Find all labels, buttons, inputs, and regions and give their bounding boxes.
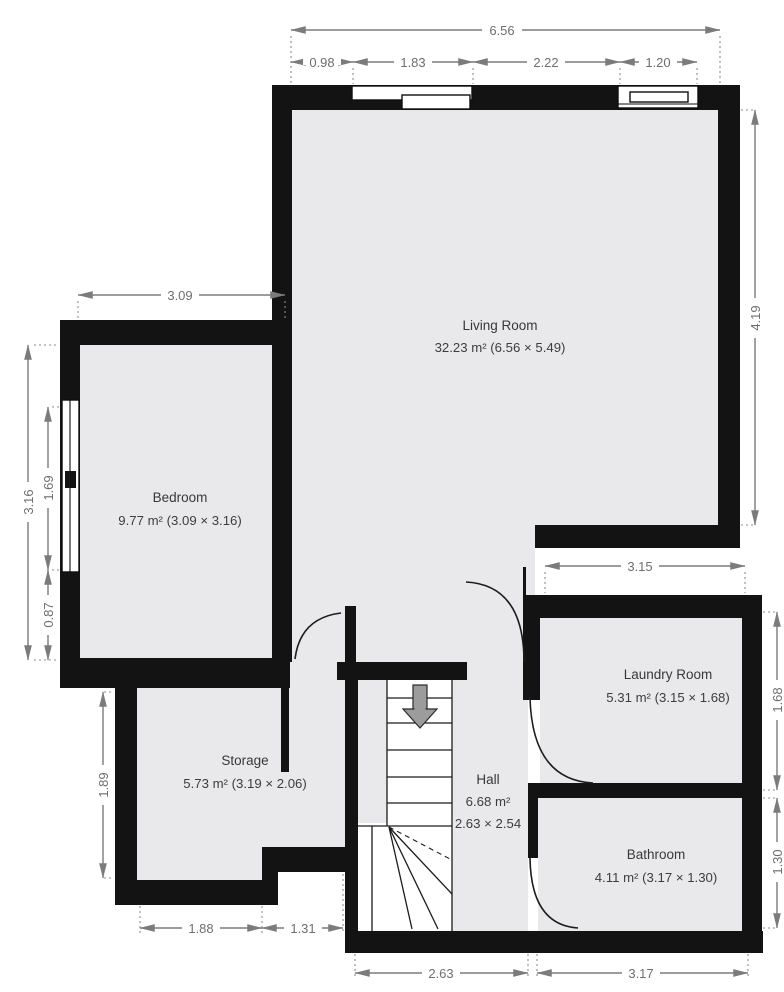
door-leaf <box>281 688 289 772</box>
wall <box>345 662 358 953</box>
wall <box>528 783 742 798</box>
storage-name: Storage <box>221 753 268 768</box>
dim-right-bathroom: 1.30 <box>770 849 784 874</box>
dim-left-below-window: 0.87 <box>41 602 56 627</box>
dim-top-a: 0.98 <box>309 55 334 70</box>
dim-bottom-hall: 2.63 <box>428 966 453 981</box>
hall-area: 6.68 m² <box>466 794 511 809</box>
bathroom-name: Bathroom <box>627 847 686 862</box>
dim-left-total: 3.16 <box>21 489 36 514</box>
dim-storage-height: 1.89 <box>96 772 111 797</box>
wall <box>345 931 763 953</box>
laundry-room-name: Laundry Room <box>624 667 713 682</box>
wall <box>115 880 278 905</box>
dim-bottom-notch: 1.31 <box>290 921 315 936</box>
floor-plan-canvas: 6.56 0.98 1.83 2.22 1.20 3.09 3.16 <box>0 0 784 992</box>
wall <box>718 85 740 548</box>
wall <box>60 658 290 688</box>
hall-dims: 2.63 × 2.54 <box>455 816 521 831</box>
living-room-area: 32.23 m² (6.56 × 5.49) <box>435 340 566 355</box>
wall <box>742 595 762 953</box>
living-room-floor-lower <box>292 110 535 662</box>
storage-area: 5.73 m² (3.19 × 2.06) <box>183 776 307 791</box>
storage-doorway-floor <box>290 658 345 688</box>
door-leaf <box>523 567 526 597</box>
bathroom-area: 4.11 m² (3.17 × 1.30) <box>595 870 718 885</box>
dim-left-window: 1.69 <box>41 475 56 500</box>
dim-bottom-storage: 1.88 <box>188 921 213 936</box>
bedroom-area: 9.77 m² (3.09 × 3.16) <box>118 513 242 528</box>
dim-top-d: 1.20 <box>645 55 670 70</box>
dim-bedroom-width: 3.09 <box>167 288 192 303</box>
wall <box>535 525 740 548</box>
wall <box>528 798 538 858</box>
dim-top-total: 6.56 <box>489 23 514 38</box>
dim-right-laundry: 1.68 <box>770 687 784 712</box>
bathroom-floor <box>538 798 742 931</box>
wall <box>523 595 540 700</box>
wall <box>115 658 137 905</box>
living-room-name: Living Room <box>462 318 537 333</box>
window-top-right <box>618 86 698 108</box>
wall <box>262 847 278 905</box>
wall <box>272 85 292 662</box>
hall-name: Hall <box>476 772 499 787</box>
dim-right-living: 4.19 <box>748 305 763 330</box>
door-leaf <box>345 606 356 662</box>
dim-top-c: 2.22 <box>533 55 558 70</box>
laundry-room-area: 5.31 m² (3.15 × 1.68) <box>606 690 730 705</box>
bedroom-name: Bedroom <box>153 490 208 505</box>
wall <box>60 320 290 345</box>
dim-laundry-width: 3.15 <box>627 559 652 574</box>
floor-plan: 6.56 0.98 1.83 2.22 1.20 3.09 3.16 <box>0 0 784 992</box>
dim-bottom-bathroom: 3.17 <box>628 966 653 981</box>
wall <box>528 595 762 618</box>
window-bedroom-left <box>62 400 79 572</box>
dim-top-b: 1.83 <box>400 55 425 70</box>
